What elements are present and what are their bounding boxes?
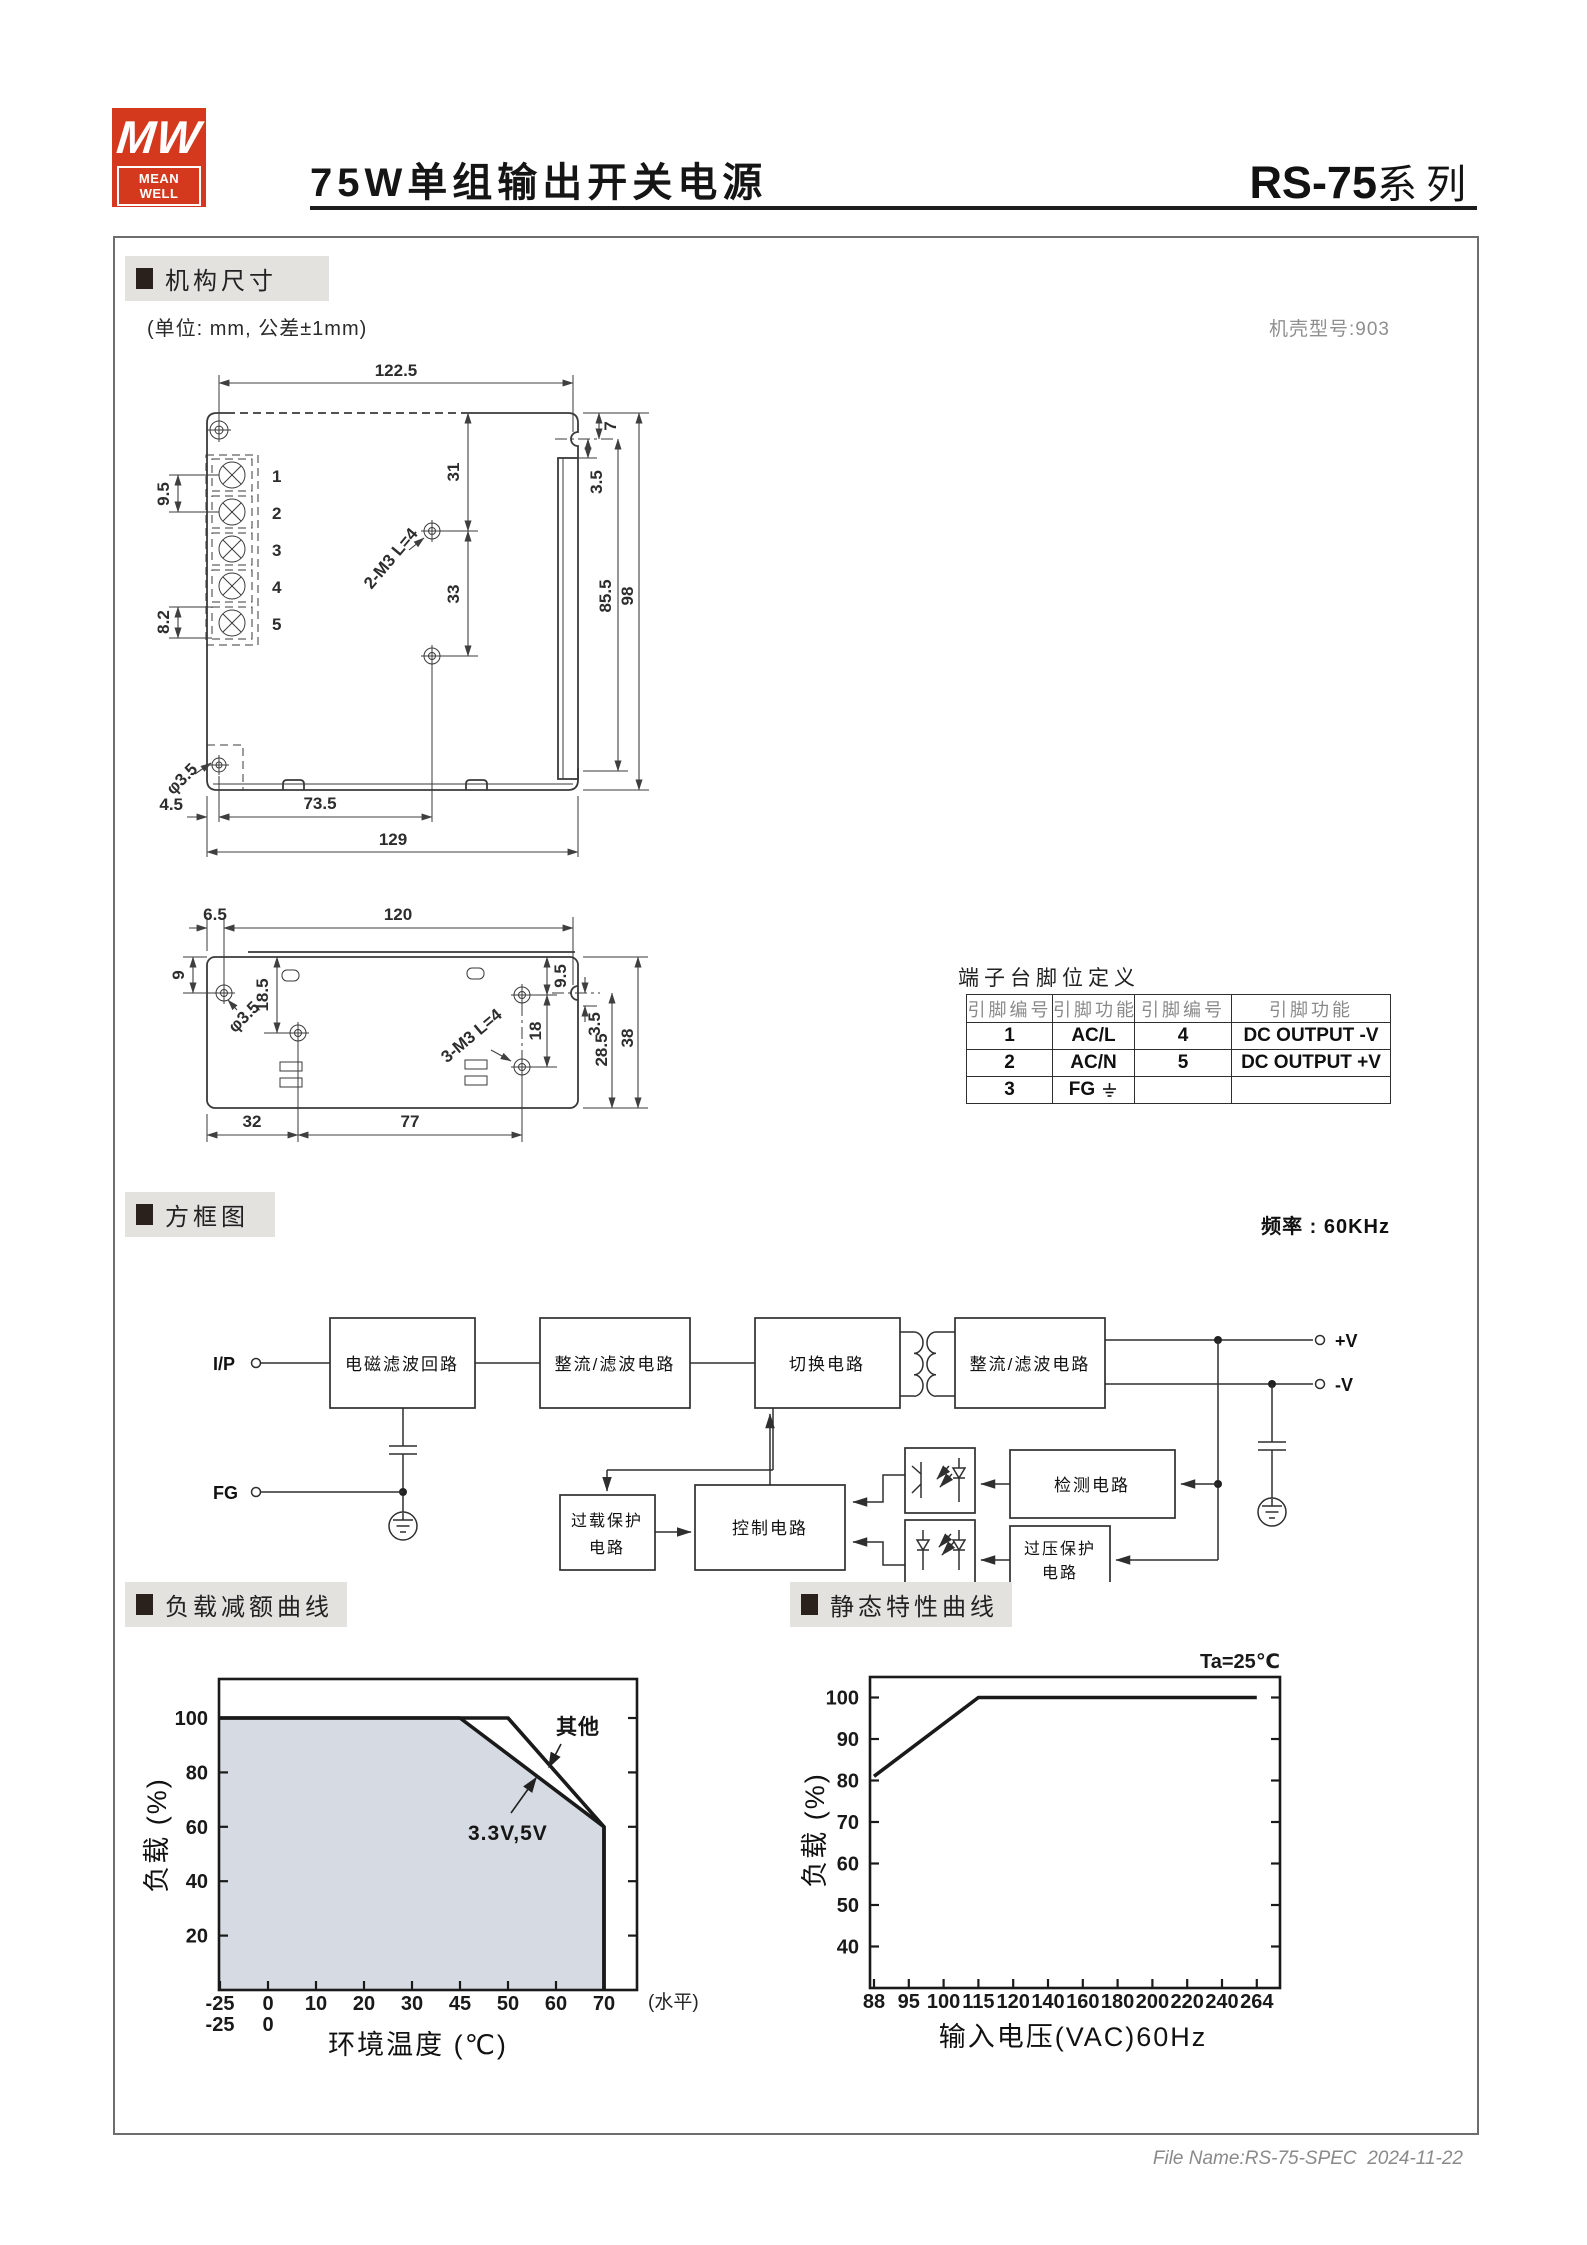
x-tick-label: -25 <box>206 1993 235 2015</box>
svg-text:120: 120 <box>384 905 412 924</box>
svg-text:38: 38 <box>618 1029 637 1048</box>
screw-hole-bottom-left <box>209 755 229 775</box>
svg-text:8.2: 8.2 <box>154 610 173 634</box>
earth-ground-icon <box>389 1496 417 1540</box>
x-tick-label: 70 <box>593 1993 615 2015</box>
x-tick-label-row2: -25 <box>206 2014 235 2036</box>
fg-label: FG <box>213 1483 238 1503</box>
file-name-note: File Name:RS-75-SPEC 2024-11-22 <box>1153 2148 1463 2170</box>
svg-text:6.5: 6.5 <box>203 905 227 924</box>
x-tick-label: 160 <box>1066 1991 1099 2013</box>
svg-text:3.5: 3.5 <box>585 1012 604 1036</box>
switching-label: 切换电路 <box>789 1355 865 1374</box>
dim-hole-dia-top: φ3.5 <box>163 760 211 799</box>
annotation: Ta=25℃ <box>1200 1651 1280 1673</box>
pin-col-header: 引脚功能 <box>1232 995 1391 1023</box>
block-diagram: I/P 电磁滤波回路 整流/滤波电路 切换电路 整流/滤波电路 +V -V <box>113 1270 1475 1582</box>
page-title: 75W单组输出开关电源 <box>310 150 767 208</box>
svg-text:9: 9 <box>169 970 188 979</box>
transformer-icon <box>900 1332 955 1396</box>
optocoupler1-symbol <box>912 1458 965 1502</box>
y-tick-label: 100 <box>826 1688 859 1710</box>
table-row: 2 AC/N 5 DC OUTPUT +V <box>967 1050 1391 1077</box>
pin-col-header: 引脚编号 <box>1135 995 1232 1023</box>
fg-terminal <box>252 1488 261 1497</box>
control-label: 控制电路 <box>732 1519 808 1538</box>
svg-text:129: 129 <box>379 830 407 849</box>
dim-98: 98 <box>583 413 649 790</box>
svg-text:98: 98 <box>618 587 637 606</box>
x-tick-label: 240 <box>1205 1991 1238 2013</box>
x-tick-label: 180 <box>1101 1991 1134 2013</box>
svg-text:73.5: 73.5 <box>303 794 336 813</box>
pin-number: 4 <box>1135 1023 1232 1050</box>
header-rule <box>310 206 1477 210</box>
y-tick-label: 80 <box>837 1771 859 1793</box>
dim-screw-note-top: 2-M3 L=4 <box>360 524 424 593</box>
rectifier2-label: 整流/滤波电路 <box>970 1355 1091 1374</box>
y-tick-label: 80 <box>186 1762 208 1784</box>
y-axis-label: 负载 (%) <box>142 1777 172 1893</box>
section-label: 静态特性曲线 <box>830 1587 998 1622</box>
emi-filter-label: 电磁滤波回路 <box>345 1355 459 1374</box>
overload-label-line1: 过载保护 <box>571 1512 643 1530</box>
section-square-icon <box>136 268 153 289</box>
x-axis-note: (水平) <box>648 1991 699 2013</box>
pin-number: 1 <box>967 1023 1053 1050</box>
y-tick-label: 90 <box>837 1729 859 1751</box>
section-label: 负载减额曲线 <box>165 1587 333 1622</box>
dim-side-screw-note: 3-M3 L=4 <box>437 1005 511 1067</box>
x-tick-label: 140 <box>1031 1991 1064 2013</box>
dim-bottom-row: 4.5 73.5 129 <box>159 664 578 857</box>
input-terminal <box>252 1359 261 1368</box>
y-tick-label: 70 <box>837 1812 859 1834</box>
x-tick-label: 20 <box>353 1993 375 2015</box>
terminal-number: 1 <box>272 467 281 486</box>
optocoupler2-box <box>905 1520 975 1582</box>
pin-number: 3 <box>967 1077 1053 1104</box>
svg-text:2-M3 L=4: 2-M3 L=4 <box>360 524 422 593</box>
pin-number: 2 <box>967 1050 1053 1077</box>
svg-text:85.5: 85.5 <box>596 579 615 612</box>
drawing-side-view: 6.5 120 9 18.5 φ3.5 3-M3 L=4 <box>169 905 648 1142</box>
dim-31-33: 31 33 <box>440 413 478 656</box>
section-square-icon <box>801 1594 818 1615</box>
section-header-static: 静态特性曲线 <box>790 1582 1012 1627</box>
detect-label: 检测电路 <box>1054 1476 1130 1495</box>
terminal-block: 1 2 3 4 5 <box>206 455 282 645</box>
x-tick-label: 115 <box>962 1991 994 2013</box>
dim-side-top: 6.5 120 <box>189 905 573 985</box>
static-characteristic-chart: 4050607080901008895100115120140160180200… <box>800 1630 1390 2070</box>
pin-number: 5 <box>1135 1050 1232 1077</box>
frequency-note: 频率 : 60KHz <box>1261 1210 1390 1239</box>
earth-ground-icon <box>1101 1083 1118 1098</box>
y-tick-label: 40 <box>186 1871 208 1893</box>
drawing-top-view: 1 2 3 4 5 122.5 9.5 <box>154 361 649 857</box>
x-tick-label-row2: 0 <box>262 2014 273 2036</box>
svg-text:77: 77 <box>401 1112 420 1131</box>
section-square-icon <box>136 1204 153 1225</box>
y-tick-label: 50 <box>837 1895 859 1917</box>
table-row: 3 FG <box>967 1077 1391 1104</box>
x-tick-label: 88 <box>863 1991 885 2013</box>
meanwell-logo: MW MEAN WELL <box>112 108 206 207</box>
dim-side-right: 9.5 18 3.5 28.5 38 <box>526 957 648 1108</box>
svg-text:3.5: 3.5 <box>587 470 606 494</box>
x-tick-label: 100 <box>927 1991 960 2013</box>
pin-function: AC/L <box>1053 1023 1135 1050</box>
svg-text:32: 32 <box>243 1112 262 1131</box>
x-tick-label: 10 <box>305 1993 327 2015</box>
input-label: I/P <box>213 1354 235 1374</box>
x-tick-label: 30 <box>401 1993 423 2015</box>
x-axis-label: 环境温度 (℃) <box>328 2030 508 2060</box>
svg-text:3-M3 L=4: 3-M3 L=4 <box>437 1005 506 1067</box>
dim-122-5: 122.5 <box>219 361 573 432</box>
overload-label-line2: 电路 <box>589 1539 625 1557</box>
section-header-mechanical: 机构尺寸 <box>125 256 329 301</box>
pin-function <box>1232 1077 1391 1104</box>
svg-text:4.5: 4.5 <box>159 795 183 814</box>
ovp-label-line1: 过压保护 <box>1024 1540 1096 1558</box>
svg-text:9.5: 9.5 <box>154 482 173 506</box>
x-tick-label: 264 <box>1240 1991 1274 2013</box>
pin-function: AC/N <box>1053 1050 1135 1077</box>
svg-text:φ3.5: φ3.5 <box>163 760 202 799</box>
dim-side-18-5: 18.5 <box>253 957 287 1033</box>
series-label: 3.3V,5V <box>468 1822 548 1845</box>
section-header-derating: 负载减额曲线 <box>125 1582 347 1627</box>
section-label: 方框图 <box>165 1197 249 1232</box>
vminus-label: -V <box>1335 1375 1353 1395</box>
logo-brand-text: MEAN WELL <box>117 166 201 206</box>
optocoupler1-box <box>905 1448 975 1513</box>
y-tick-label: 100 <box>175 1708 208 1730</box>
ovp-label-line2: 电路 <box>1042 1564 1078 1582</box>
vminus-terminal <box>1316 1380 1325 1389</box>
terminal-number: 3 <box>272 541 281 560</box>
overload-protection-box <box>560 1495 655 1570</box>
y-tick-label: 20 <box>186 1926 208 1948</box>
pin-col-header: 引脚功能 <box>1053 995 1135 1023</box>
x-tick-label: 220 <box>1171 1991 1204 2013</box>
earth-ground-icon <box>1258 1498 1286 1526</box>
derating-chart: 20406080100-25010203045506070-250(水平)其他3… <box>140 1650 740 2100</box>
svg-text:18: 18 <box>526 1022 545 1041</box>
x-tick-label: 45 <box>449 1993 471 2015</box>
unit-note: (单位: mm, 公差±1mm) <box>147 312 367 341</box>
dim-side-bottom: 32 77 <box>207 1041 522 1142</box>
mounting-holes-center <box>421 520 443 667</box>
side-screw-left <box>213 982 235 1004</box>
svg-text:28.5: 28.5 <box>592 1033 611 1066</box>
svg-text:122.5: 122.5 <box>375 361 418 380</box>
svg-text:31: 31 <box>444 463 463 482</box>
y-tick-label: 60 <box>837 1854 859 1876</box>
pin-function-fg: FG <box>1053 1077 1135 1104</box>
table-row: 1 AC/L 4 DC OUTPUT -V <box>967 1023 1391 1050</box>
plot-frame <box>870 1677 1280 1988</box>
y-tick-label: 40 <box>837 1937 859 1959</box>
y-tick-label: 60 <box>186 1817 208 1839</box>
side-hole-left <box>287 1022 309 1044</box>
x-tick-label: 95 <box>898 1991 920 2013</box>
pin-function: DC OUTPUT -V <box>1232 1023 1391 1050</box>
series-line <box>874 1698 1257 1777</box>
rectifier1-label: 整流/滤波电路 <box>555 1355 676 1374</box>
x-tick-label: 0 <box>262 1993 273 2015</box>
logo-monogram: MW <box>109 108 209 166</box>
series-title: RS-75系列 <box>1249 152 1475 210</box>
dim-9-5: 9.5 <box>154 475 219 512</box>
vplus-terminal <box>1316 1336 1325 1345</box>
terminal-number: 5 <box>272 615 281 634</box>
series-label: 其他 <box>556 1715 600 1739</box>
pin-function: DC OUTPUT +V <box>1232 1050 1391 1077</box>
case-note: 机壳型号:903 <box>1269 314 1390 341</box>
svg-text:33: 33 <box>444 585 463 604</box>
svg-text:7: 7 <box>601 421 620 430</box>
pin-number <box>1135 1077 1232 1104</box>
pin-col-header: 引脚编号 <box>967 995 1053 1023</box>
section-square-icon <box>136 1594 153 1615</box>
section-label: 机构尺寸 <box>165 261 277 296</box>
x-tick-label: 60 <box>545 1993 567 2015</box>
x-axis-label: 输入电压(VAC)60Hz <box>939 2022 1208 2052</box>
dim-8-2: 8.2 <box>154 607 212 638</box>
pin-table: 引脚编号 引脚功能 引脚编号 引脚功能 1 AC/L 4 DC OUTPUT -… <box>966 994 1391 1104</box>
y-axis-label: 负载 (%) <box>800 1772 830 1888</box>
series-code: RS-75 <box>1249 157 1377 208</box>
fg-label: FG <box>1069 1079 1095 1101</box>
section-header-block: 方框图 <box>125 1192 275 1237</box>
series-suffix: 系列 <box>1377 163 1475 207</box>
x-tick-label: 200 <box>1136 1991 1169 2013</box>
vplus-label: +V <box>1335 1331 1358 1351</box>
svg-text:9.5: 9.5 <box>551 964 570 988</box>
x-tick-label: 120 <box>997 1991 1030 2013</box>
x-tick-label: 50 <box>497 1993 519 2015</box>
optocoupler2-symbol <box>917 1530 965 1570</box>
terminal-number: 4 <box>272 578 282 597</box>
pin-table-title: 端子台脚位定义 <box>958 962 1140 992</box>
pin-table-header-row: 引脚编号 引脚功能 引脚编号 引脚功能 <box>967 995 1391 1023</box>
datasheet-page: MW MEAN WELL 75W单组输出开关电源 RS-75系列 机构尺寸 (单… <box>0 0 1587 2245</box>
terminal-number: 2 <box>272 504 281 523</box>
